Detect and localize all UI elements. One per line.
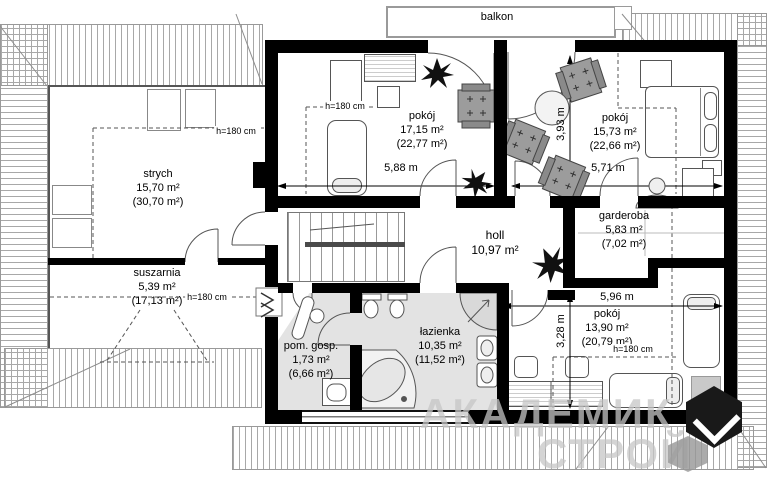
height-label: h=180 cm (185, 292, 229, 302)
room-name: pokój (590, 112, 641, 126)
wall-bath-left (350, 345, 362, 410)
height-label: h=180 cm (611, 344, 655, 354)
wall-suszarnia (48, 258, 185, 265)
chair-icon (565, 356, 589, 378)
stairs-railing (305, 242, 405, 247)
dim-room3-depth: 3,28 m (555, 314, 567, 348)
dim-room3-width: 5,96 m (600, 291, 634, 303)
room-area-total: (22,77 m²) (397, 138, 448, 152)
room-name: łazienka (415, 326, 465, 340)
bench-icon (640, 60, 672, 88)
room-area-total: (7,02 m²) (599, 238, 649, 252)
stairs (287, 212, 405, 282)
room-label-lazienka: łazienka 10,35 m² (11,52 m²) (415, 326, 465, 367)
pillow-icon (332, 178, 362, 193)
annex-wall-top (48, 85, 266, 87)
wall-top (575, 40, 737, 52)
room-label-pokoj2: pokój 15,73 m² (22,66 m²) (590, 112, 641, 153)
room-area: 1,73 m² (284, 354, 338, 368)
room-area-total: (30,70 m²) (133, 196, 184, 210)
annex-wall-left (48, 85, 50, 348)
wall-room3-top (548, 290, 575, 300)
wall-garderoba-bottom (648, 258, 724, 268)
armchair-icon (458, 56, 607, 203)
wall-mid (278, 196, 420, 208)
cabinet-icon (52, 218, 92, 248)
room-label-garderoba: garderoba 5,83 m² (7,02 m²) (599, 210, 649, 251)
chair-icon (514, 356, 538, 378)
cabinet-icon (377, 86, 400, 108)
cabinet-icon (52, 185, 92, 215)
wall-mid (550, 196, 600, 208)
wall-left (265, 40, 278, 212)
room-name: holl (471, 228, 518, 243)
floor-plan: balkon (0, 0, 767, 480)
room-label-holl: holl 10,97 m² (471, 228, 518, 258)
skylight-icon (185, 89, 216, 128)
washing-machine-icon (322, 378, 351, 406)
skylight-icon (147, 89, 181, 131)
wall-suszarnia (218, 258, 265, 265)
roof-hatch-right (737, 13, 767, 468)
wall-garderoba-bottom (570, 278, 655, 288)
room-area-total: (17,13 m²) (132, 295, 183, 309)
room-label-pokoj1: pokój 17,15 m² (22,77 m²) (397, 110, 448, 151)
room-area: 5,83 m² (599, 224, 649, 238)
pillow-icon (704, 92, 717, 120)
room-name: pokój (397, 110, 448, 124)
wall-pomgosp-top (312, 283, 353, 293)
room-area: 17,15 m² (397, 124, 448, 138)
wall-bath-left (350, 283, 362, 313)
roof-hatch-bottom-left (4, 348, 262, 408)
room-area: 5,39 m² (132, 281, 183, 295)
room-name: garderoba (599, 210, 649, 224)
wall-pomgosp-top (278, 283, 293, 293)
height-label: h=180 cm (323, 101, 367, 111)
room-name: pom. gosp. (284, 340, 338, 354)
wall-bottom (265, 410, 302, 424)
wall-room-divider (494, 40, 507, 196)
height-label: h=180 cm (214, 126, 258, 136)
room-area: 10,97 m² (471, 243, 518, 258)
wall-garderoba-left (563, 208, 575, 288)
bed-blanket-line (700, 88, 701, 156)
room-label-suszarnia: suszarnia 5,39 m² (17,13 m²) (132, 267, 183, 308)
room-area: 10,35 m² (415, 340, 465, 354)
pillow-icon (704, 124, 717, 152)
wall-left (265, 317, 278, 412)
pillow-icon (687, 297, 716, 310)
wall-mid (456, 196, 515, 208)
wall-top (265, 40, 428, 53)
room-name: strych (133, 168, 184, 182)
room-label-strych: strych 15,70 m² (30,70 m²) (133, 168, 184, 209)
room-name: pokój (582, 308, 633, 322)
dim-room2-width: 5,71 m (591, 162, 625, 174)
room-area: 15,70 m² (133, 182, 184, 196)
room-area: 15,73 m² (590, 126, 641, 140)
wall-bath-top (353, 283, 420, 293)
room-area: 13,90 m² (582, 322, 633, 336)
dim-room2-depth: 3,93 m (555, 107, 567, 141)
chimney (253, 162, 265, 188)
wall-mid (638, 196, 724, 208)
room-area-total: (11,52 m²) (415, 354, 465, 368)
wall-right (724, 40, 737, 424)
room-area-total: (6,66 m²) (284, 368, 338, 382)
desk-icon (364, 54, 416, 82)
room-name: suszarnia (132, 267, 183, 281)
room-area-total: (22,66 m²) (590, 140, 641, 154)
balcony-step (614, 6, 632, 30)
room-label-pom-gosp: pom. gosp. 1,73 m² (6,66 m²) (284, 340, 338, 381)
balcony-label: balkon (481, 11, 513, 25)
dim-room1-width: 5,88 m (384, 162, 418, 174)
wardrobe-icon (330, 60, 362, 102)
wall-left (265, 245, 278, 287)
